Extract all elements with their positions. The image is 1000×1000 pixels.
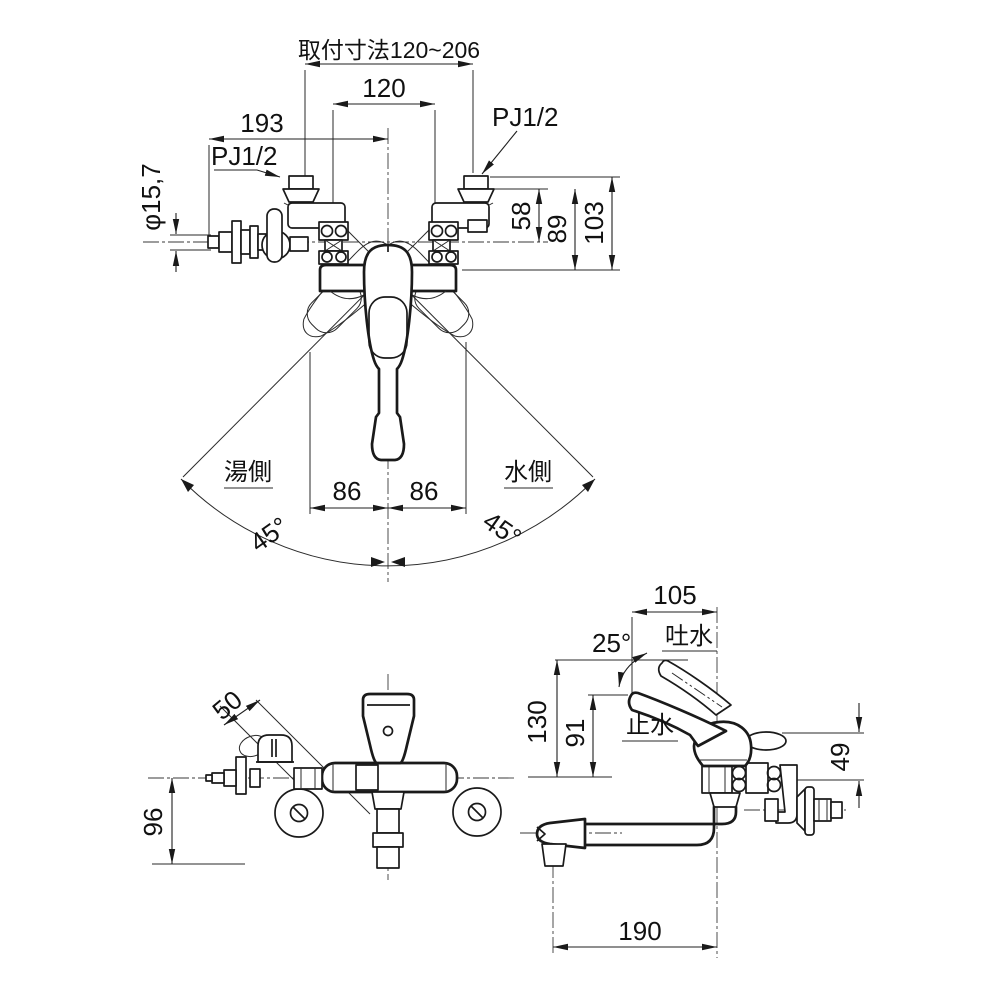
label-discharge: 吐水: [665, 623, 713, 650]
dim-103: 103: [579, 201, 609, 244]
angle-arc-25: [619, 653, 647, 687]
dim-mounting-range: 取付寸法120~206: [298, 37, 480, 63]
lever-handle-plan: [363, 694, 414, 763]
dim-58: 58: [506, 202, 536, 231]
dim-130: 130: [522, 700, 552, 743]
drawing-canvas: 取付寸法120~206 120 193 PJ1/2 PJ1/2 φ15,7 58…: [0, 0, 1000, 1000]
dim-96: 96: [138, 808, 168, 837]
dim-105: 105: [653, 580, 696, 610]
dim-86-left: 86: [333, 476, 362, 506]
label-hot-side: 湯側: [224, 459, 272, 486]
wall-connection-side: [765, 765, 842, 835]
faucet-body-plan: [322, 763, 457, 792]
side-view: 105 25° 吐水 止水 130 91 49 190: [520, 580, 864, 958]
lever-handle-front: [364, 245, 412, 460]
faucet-dimension-diagram: 取付寸法120~206 120 193 PJ1/2 PJ1/2 φ15,7 58…: [0, 0, 1000, 1000]
spout-stub-plan: [372, 792, 404, 868]
stop-valve-plan: [206, 732, 322, 794]
dim-49: 49: [825, 743, 855, 772]
leader-pj-right: [482, 131, 517, 174]
angle-45-left: 45°: [244, 511, 293, 558]
plan-view: 50 96: [138, 674, 516, 880]
dim-89: 89: [542, 215, 572, 244]
dim-91: 91: [560, 719, 590, 748]
dim-width-193: 193: [240, 108, 283, 138]
stop-valve-knob-plan: [258, 735, 292, 762]
angle-45-right: 45°: [478, 505, 527, 552]
spout-side: [537, 807, 736, 866]
leader-pj-left: [214, 170, 280, 177]
label-stop: 止水: [626, 712, 674, 739]
stop-valve-handle-front: [267, 209, 282, 262]
wall-crank-right: [429, 176, 494, 264]
spout-aerator: [542, 844, 566, 866]
wall-flange-disc-right: [453, 788, 501, 836]
front-centerlines: [143, 128, 593, 582]
dim-50: 50: [206, 684, 247, 726]
thread-label-left: PJ1/2: [211, 141, 278, 171]
dim-pitch-120: 120: [362, 73, 405, 103]
dim-190: 190: [618, 916, 661, 946]
front-view: 取付寸法120~206 120 193 PJ1/2 PJ1/2 φ15,7 58…: [136, 37, 620, 582]
label-cold-side: 水側: [504, 459, 552, 486]
dim-86-right: 86: [410, 476, 439, 506]
angle-25: 25°: [592, 628, 631, 658]
dim-tip-diameter: φ15,7: [136, 163, 166, 230]
wall-flange-disc-left: [275, 789, 323, 837]
thread-label-right: PJ1/2: [492, 102, 559, 132]
